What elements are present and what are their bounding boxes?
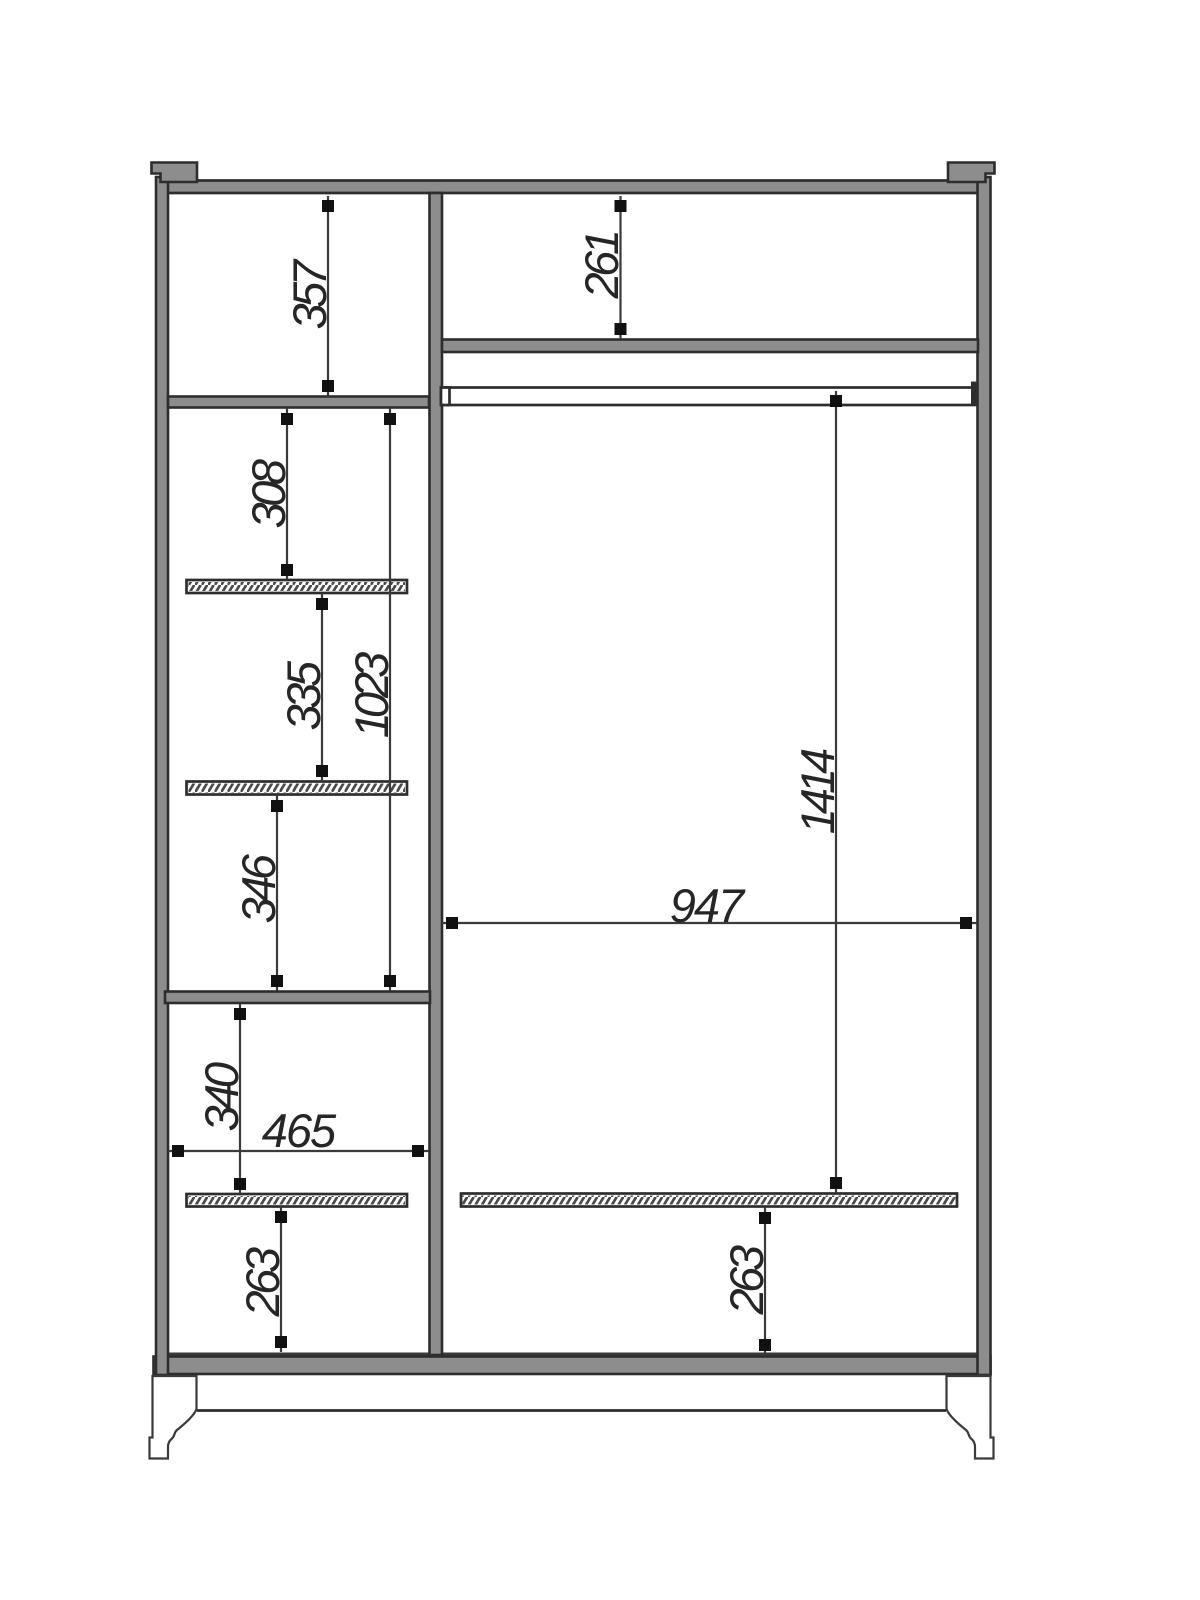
svg-text:357: 357 [283, 258, 336, 329]
svg-text:1414: 1414 [791, 749, 844, 834]
svg-text:340: 340 [195, 1062, 248, 1131]
svg-text:1023: 1023 [345, 652, 398, 738]
svg-text:263: 263 [236, 1247, 289, 1317]
svg-text:308: 308 [242, 459, 295, 528]
svg-text:346: 346 [232, 853, 285, 923]
svg-text:263: 263 [720, 1245, 773, 1315]
svg-text:465: 465 [262, 1104, 337, 1157]
svg-text:335: 335 [277, 660, 330, 730]
svg-text:261: 261 [575, 232, 628, 299]
svg-text:947: 947 [670, 879, 746, 932]
